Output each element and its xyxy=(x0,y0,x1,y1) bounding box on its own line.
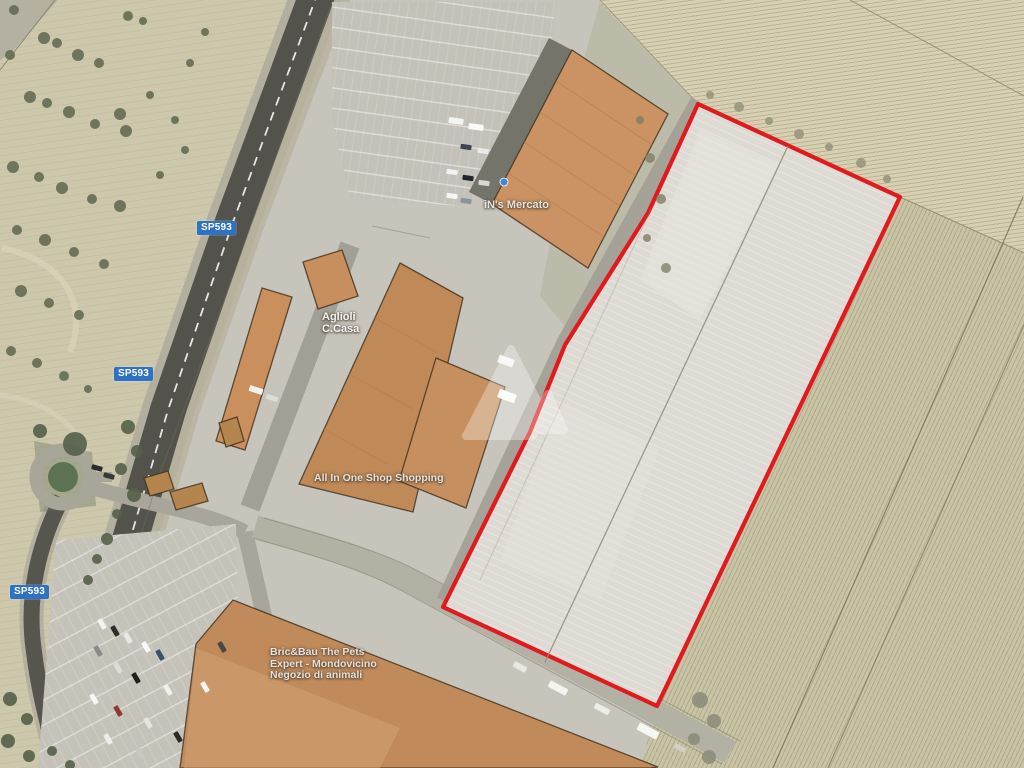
road-badge-sp593-middle: SP593 xyxy=(114,367,153,381)
place-label-shop-line2: C.Casa xyxy=(322,324,359,336)
road-badge-sp593-top: SP593 xyxy=(197,221,236,235)
aerial-scene xyxy=(0,0,1024,768)
place-label-pet-store: Bric&Bau The Pets Expert - Mondovicino N… xyxy=(270,647,377,682)
place-label-pet-line3: Negozio di animali xyxy=(270,670,377,682)
place-label-shop-line1: Aglioli xyxy=(322,312,359,324)
place-label-pet-line1: Bric&Bau The Pets xyxy=(270,647,377,659)
store-location-dot-icon xyxy=(500,178,508,186)
place-label-mall: All In One Shop Shopping xyxy=(314,473,444,485)
place-label-supermarket: iN's Mercato xyxy=(484,200,549,212)
place-label-shops: Aglioli C.Casa xyxy=(322,312,359,335)
road-badge-sp593-bottom: SP593 xyxy=(10,585,49,599)
map-canvas[interactable]: SP593 SP593 SP593 iN's Mercato Aglioli C… xyxy=(0,0,1024,768)
